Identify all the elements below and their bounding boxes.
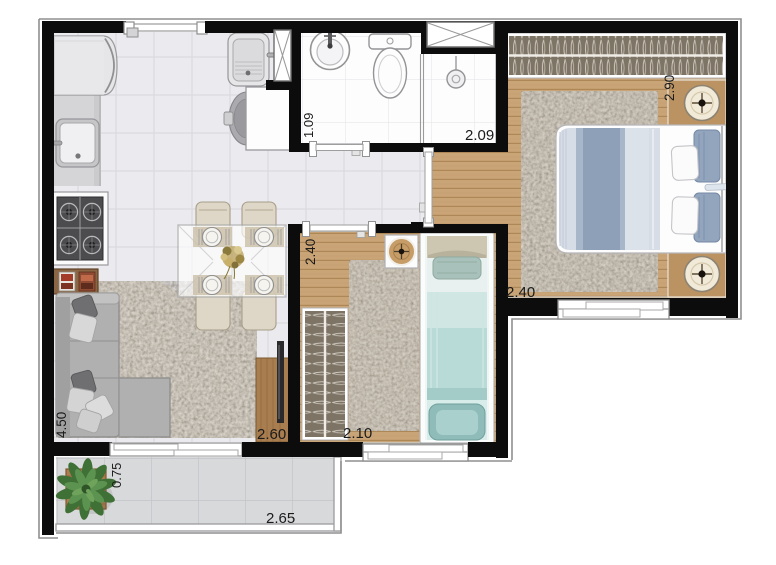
svg-text:2.40: 2.40 bbox=[506, 284, 535, 301]
svg-text:2.09: 2.09 bbox=[465, 127, 494, 144]
svg-text:0.75: 0.75 bbox=[109, 463, 124, 488]
svg-text:2.65: 2.65 bbox=[266, 510, 295, 527]
svg-text:2.60: 2.60 bbox=[257, 426, 286, 443]
svg-text:4.50: 4.50 bbox=[54, 412, 69, 438]
svg-text:1.09: 1.09 bbox=[301, 113, 316, 138]
svg-text:2.40: 2.40 bbox=[303, 239, 318, 265]
svg-text:2.10: 2.10 bbox=[343, 425, 372, 442]
svg-text:2.90: 2.90 bbox=[662, 75, 677, 101]
